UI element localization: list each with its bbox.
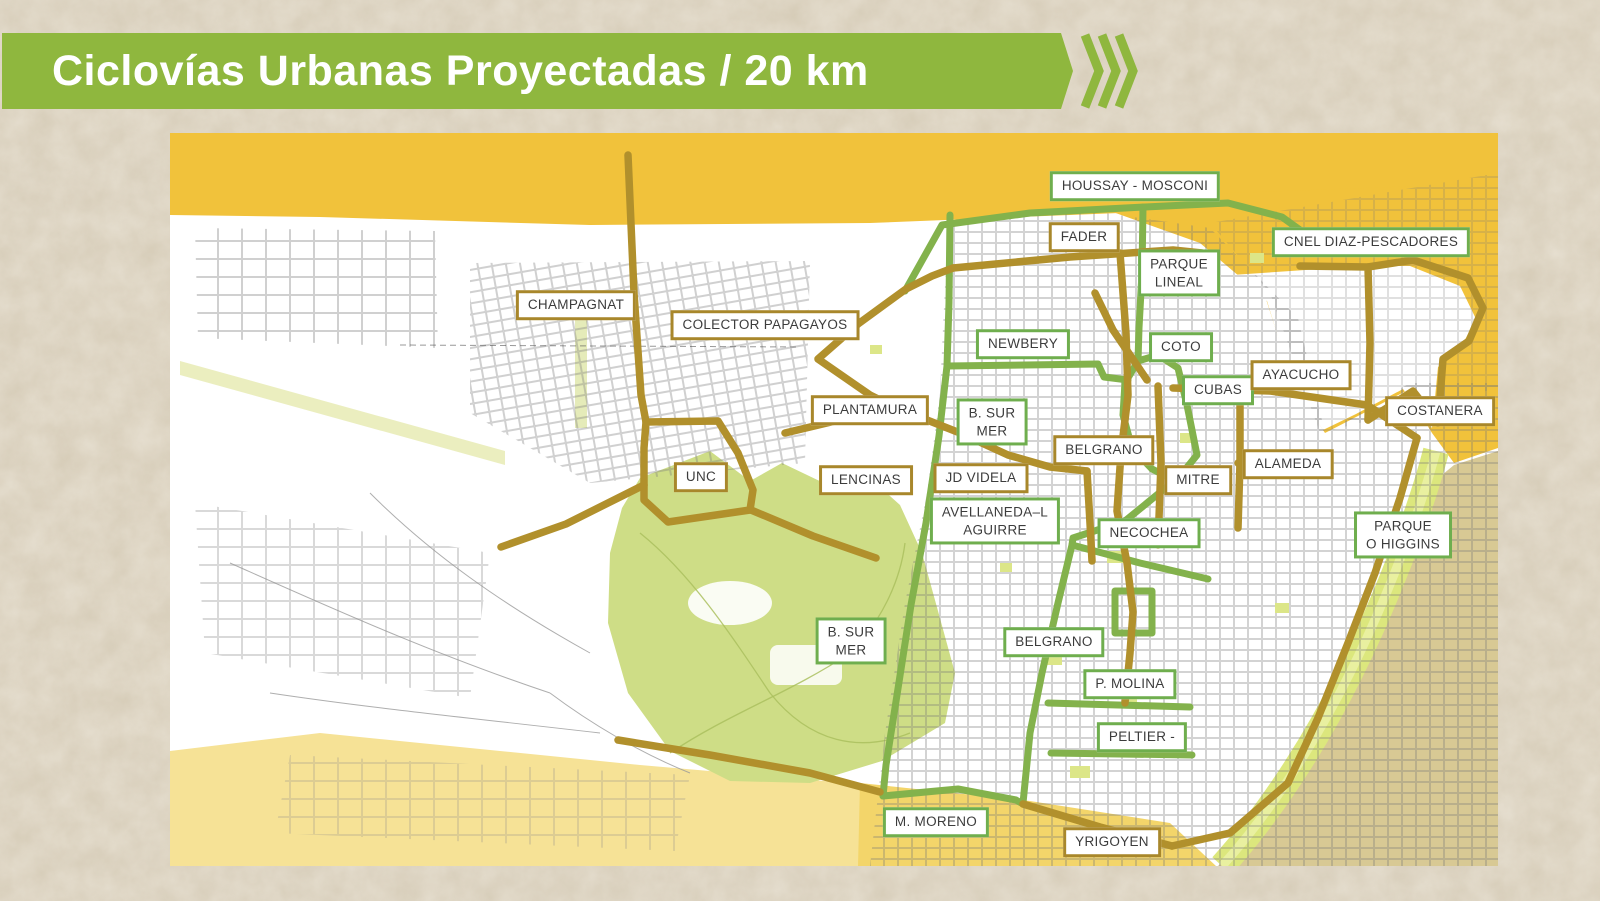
map-label-necochea: NECOCHEA xyxy=(1098,518,1201,548)
map-label-peltier: PELTIER - xyxy=(1097,722,1187,752)
map-label-b-sur-mer-sur: B. SURMER xyxy=(816,617,887,664)
map-labels-layer: HOUSSAY - MOSCONIFADERPARQUELINEALCNEL D… xyxy=(170,133,1498,866)
map-label-yrigoyen: YRIGOYEN xyxy=(1063,827,1161,857)
map-label-houssay-mosconi: HOUSSAY - MOSCONI xyxy=(1050,171,1220,201)
map-label-alameda: ALAMEDA xyxy=(1243,449,1334,479)
map-label-parque-o-higgins: PARQUEO HIGGINS xyxy=(1354,511,1452,558)
map-label-cnel-diaz-pescadores: CNEL DIAZ-PESCADORES xyxy=(1272,227,1470,257)
map-label-p-molina: P. MOLINA xyxy=(1083,669,1176,699)
map-label-b-sur-mer-norte: B. SURMER xyxy=(957,398,1028,445)
map-label-belgrano-sur: BELGRANO xyxy=(1003,627,1104,657)
map-label-m-moreno: M. MORENO xyxy=(883,807,989,837)
map-label-jd-videla: JD VIDELA xyxy=(934,463,1029,493)
map-label-avellaneda-l-aguirre: AVELLANEDA–LAGUIRRE xyxy=(930,497,1060,544)
map-label-fader: FADER xyxy=(1049,222,1120,252)
page-title: Ciclovías Urbanas Proyectadas / 20 km xyxy=(2,47,869,96)
chevrons-icon xyxy=(1080,33,1138,109)
map-label-colector-papagayos: COLECTOR PAPAGAYOS xyxy=(671,310,860,340)
map-label-lencinas: LENCINAS xyxy=(819,465,913,495)
map: HOUSSAY - MOSCONIFADERPARQUELINEALCNEL D… xyxy=(170,133,1498,866)
header-banner: Ciclovías Urbanas Proyectadas / 20 km xyxy=(2,33,1073,109)
page: { "header": { "title": "Ciclovías Urbana… xyxy=(0,0,1600,901)
map-label-parque-lineal: PARQUELINEAL xyxy=(1138,249,1220,296)
map-label-belgrano-norte: BELGRANO xyxy=(1053,435,1154,465)
map-label-ayacucho: AYACUCHO xyxy=(1251,360,1352,390)
map-label-mitre: MITRE xyxy=(1164,465,1232,495)
map-label-cubas: CUBAS xyxy=(1182,375,1254,405)
map-label-coto: COTO xyxy=(1149,332,1213,362)
map-label-plantamura: PLANTAMURA xyxy=(811,395,929,425)
map-label-champagnat: CHAMPAGNAT xyxy=(516,290,636,320)
map-label-newbery: NEWBERY xyxy=(976,329,1070,359)
map-label-unc: UNC xyxy=(674,462,728,492)
map-label-costanera: COSTANERA xyxy=(1385,396,1495,426)
